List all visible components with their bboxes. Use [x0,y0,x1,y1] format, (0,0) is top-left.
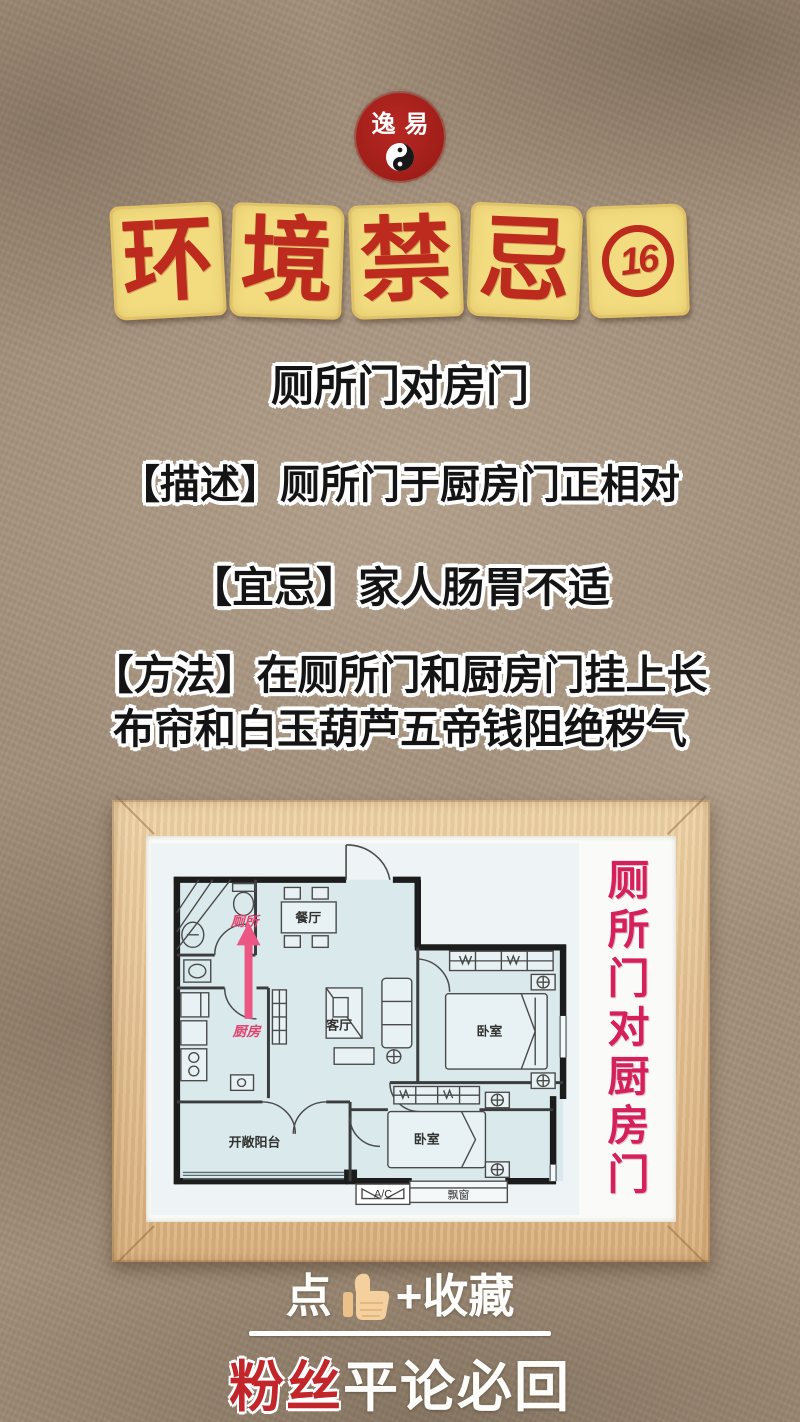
cta-fans-rest: 平论必回 [343,1356,571,1418]
yin-yang-icon [383,140,417,174]
method-lines: 【方法】在厕所门和厨房门挂上长 布帘和白玉葫芦五帝钱阻绝秽气 [0,648,800,756]
cta-like-prefix: 点 [286,1260,332,1326]
headline: 厕所门对房门 [0,352,800,414]
vertical-caption: 厕所门对厨房门 [604,858,646,1201]
floor-plan-photo: 厕所 厨房 餐厅 客厅 卧室 卧室 开敞阳台 飘窗 A/C 厕所门对厨房门 [146,836,676,1222]
poster: { "logo": { "name": "逸易" }, "title": { "… [0,0,800,1422]
frame-mitre [115,1225,155,1265]
title-tile-number: 16 [586,203,690,318]
title-tile-4: 忌 [467,202,584,321]
frame-mitre [667,1225,707,1265]
method-line-2: 布帘和白玉葫芦五帝钱阻绝秽气 [0,702,800,756]
dining-label: 餐厅 [295,910,321,925]
picture-frame: 厕所 厨房 餐厅 客厅 卧室 卧室 开敞阳台 飘窗 A/C 厕所门对厨房门 [112,800,710,1262]
title-char: 境 [239,213,334,308]
number-badge-circle: 16 [597,220,678,301]
brand-name: 逸易 [372,104,438,139]
cta-line-fans: 粉丝平论必回 [229,1342,571,1422]
cta-block: 点 +收藏 粉丝平论必回 [0,1260,800,1422]
cta-fans-word: 粉丝 [229,1356,343,1418]
title-char: 环 [120,213,217,310]
ac-label: A/C [374,1189,392,1201]
caption-column: 厕所门对厨房门 [579,843,671,1215]
title-tile-2: 境 [229,202,345,320]
frame-mitre [115,795,155,835]
cta-line-like: 点 +收藏 [286,1260,515,1326]
bedroom2-label: 卧室 [414,1132,440,1147]
brand-seal: 逸易 [356,93,444,181]
frame-mitre [667,795,707,835]
description-line: 【描述】厕所门于厨房门正相对 [0,452,800,510]
kitchen-label: 厨房 [232,1024,263,1039]
cta-like-suffix: +收藏 [396,1260,515,1326]
living-label: 客厅 [326,1018,352,1033]
title-char: 禁 [358,213,453,308]
title-tile-3: 禁 [348,202,464,320]
bathroom-label: 厕所 [230,914,261,929]
title-tile-1: 环 [109,201,227,321]
method-line-1: 【方法】在厕所门和厨房门挂上长 [0,648,800,702]
title-char: 忌 [477,213,573,309]
floor-plan: 厕所 厨房 餐厅 客厅 卧室 卧室 开敞阳台 飘窗 A/C [151,843,579,1215]
taboo-line: 【宜忌】家人肠胃不适 [0,554,800,615]
thumbs-up-icon [336,1265,392,1321]
episode-number: 16 [617,240,658,283]
title-banner: 环 境 禁 忌 16 [0,204,800,318]
bedroom1-label: 卧室 [476,1023,502,1038]
bay-window-label: 飘窗 [448,1189,470,1202]
cta-underline-1 [249,1331,551,1336]
balcony-label: 开敞阳台 [229,1135,281,1150]
